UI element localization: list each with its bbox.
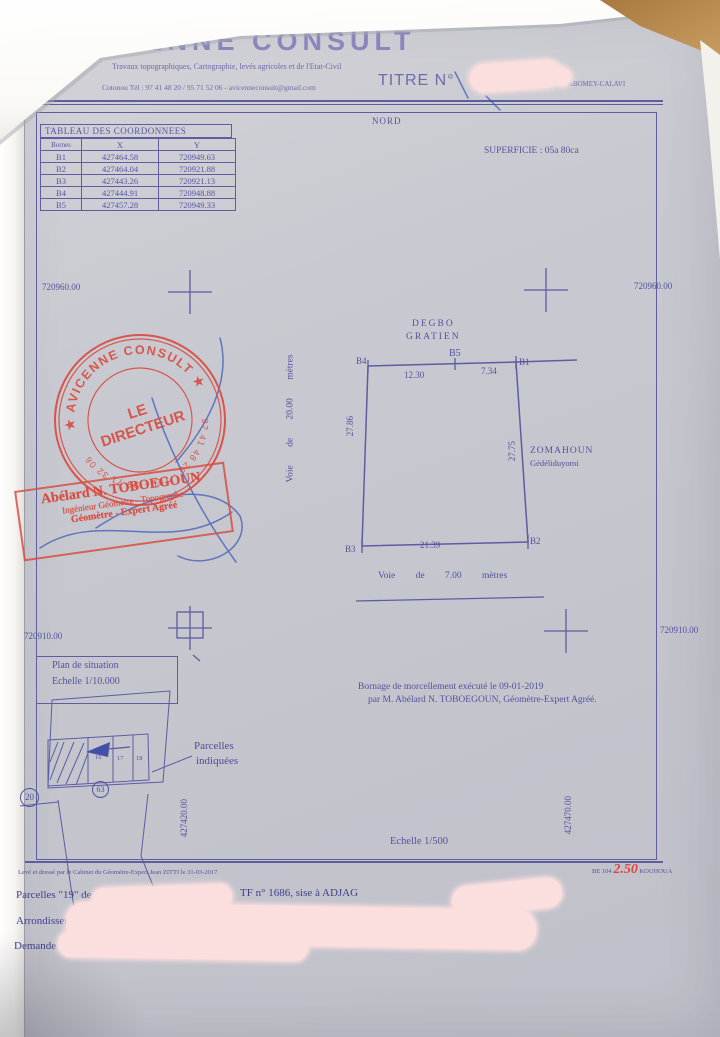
redaction-footer-4: [58, 931, 308, 961]
scanned-survey-document: AVICENNE CONSULT Travaux topographiques,…: [0, 0, 720, 1037]
redaction-layer: [0, 0, 720, 1037]
